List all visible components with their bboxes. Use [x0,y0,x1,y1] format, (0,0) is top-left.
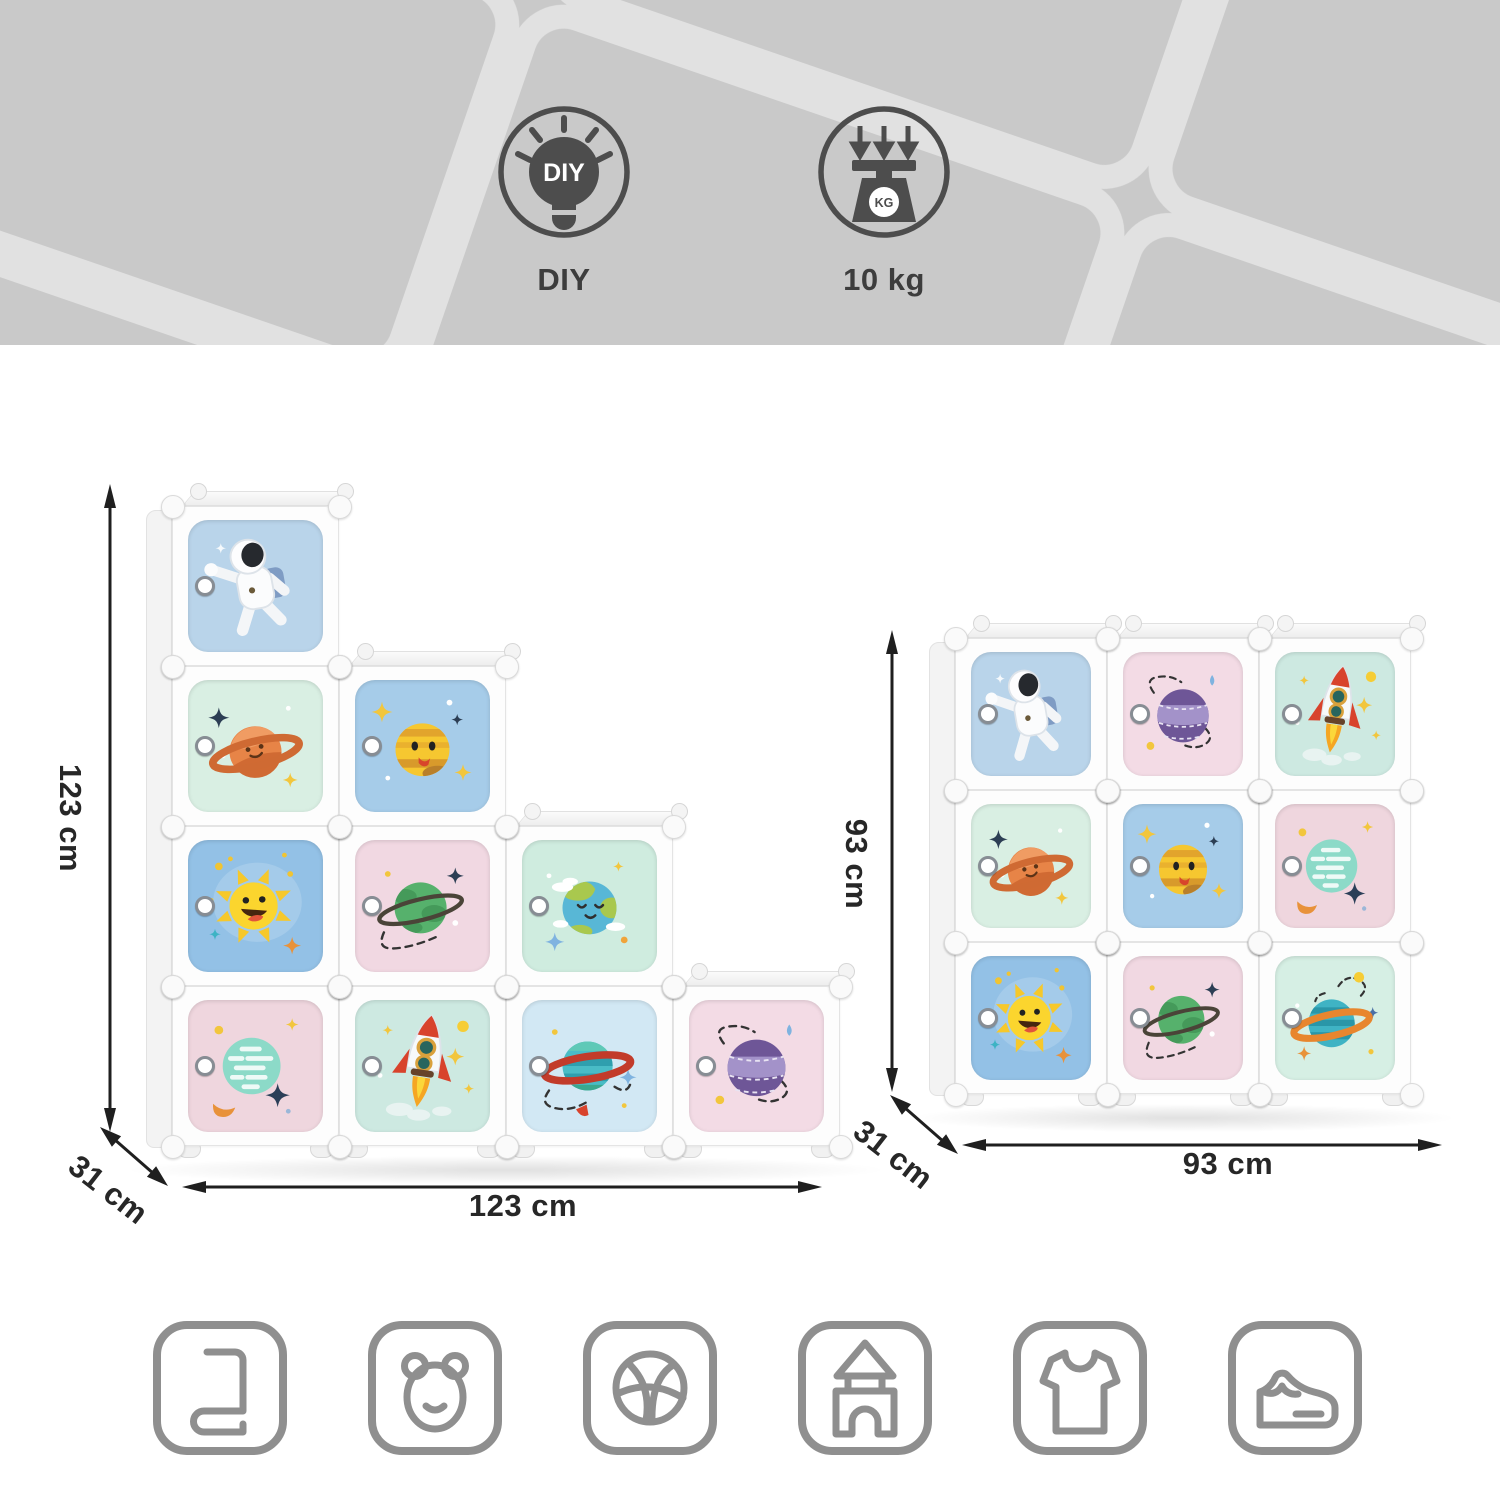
corner-connector [1400,627,1424,651]
connector-knob [1277,615,1294,632]
corner-connector [328,655,352,679]
storage-cube [172,826,339,986]
grid-configuration-shadow [915,1104,1451,1132]
cube-door-teal-dashed-planet [1275,804,1395,928]
door-handle [529,1056,549,1076]
corner-connector [944,627,968,651]
grid-width-label: 93 cm [1183,1146,1273,1182]
earth-figure [545,861,627,951]
storage-cube [1107,942,1259,1094]
storage-cube [1259,638,1411,790]
rocket-figure [1295,663,1381,766]
red-ringed-planet-figure [543,1029,637,1116]
storage-cube [673,986,840,1146]
staircase-height-arrow [95,482,125,1134]
diy-feature-label: DIY [434,262,694,298]
rocket-figure [378,1011,474,1120]
storage-cube [955,790,1107,942]
purple-planet-figure [1147,675,1215,750]
storage-cube [955,638,1107,790]
teal-planet-figure [213,1018,299,1117]
cube-door-teal-orange-ringed-planet [1275,956,1395,1080]
door-handle [529,896,549,916]
cube-door-smiley-earth [522,840,657,972]
cube-door-green-ringed-planet [1123,956,1243,1080]
door-handle [978,1008,998,1028]
connector-knob [691,963,708,980]
door-handle [362,896,382,916]
cube-door-purple-planet [689,1000,824,1132]
door-handle [362,736,382,756]
corner-connector [495,1135,519,1159]
orange-ringed-planet-figure [1292,972,1379,1061]
door-handle [1130,856,1150,876]
corner-connector [161,975,185,999]
tshirt-icon [1010,1318,1150,1458]
storage-cube [172,666,339,826]
corner-connector [1248,931,1272,955]
connector-knob [357,643,374,660]
corner-connector [1096,779,1120,803]
toy-castle-icon [795,1318,935,1458]
cube-door-rocket [1275,652,1395,776]
cube-door-saturn-orange [971,804,1091,928]
shoe-icon [1225,1318,1365,1458]
corner-connector [161,815,185,839]
corner-connector [161,495,185,519]
weight-scale-icon: KG [804,92,964,252]
corner-connector [1096,627,1120,651]
door-handle [978,856,998,876]
door-handle [195,736,215,756]
corner-connector [944,779,968,803]
saturn-figure [987,828,1075,905]
door-handle [1282,704,1302,724]
corner-connector [1400,931,1424,955]
storage-cube [339,666,506,826]
cube-door-saturn-orange [188,680,323,812]
corner-connector [1096,931,1120,955]
cube-door-green-ringed-planet [355,840,490,972]
cube-door-smiley-sun [971,956,1091,1080]
corner-connector [328,815,352,839]
door-handle [1130,1008,1150,1028]
storage-cube [172,506,339,666]
storage-cube [1259,942,1411,1094]
cube-door-astronaut [188,520,323,652]
cube-door-yellow-smiley-planet [355,680,490,812]
ball-icon [580,1318,720,1458]
door-handle [978,704,998,724]
grid-height-label: 93 cm [838,819,874,909]
connector-knob [1125,615,1142,632]
door-handle [195,896,215,916]
corner-connector [1248,779,1272,803]
purple-planet-figure [716,1025,792,1105]
door-handle [195,1056,215,1076]
corner-connector [1400,1083,1424,1107]
shoe-icon [1225,1318,1365,1458]
book-icon [150,1318,290,1458]
book-icon [150,1318,290,1458]
cube-door-smiley-sun [188,840,323,972]
corner-connector [495,815,519,839]
yellow-planet-figure [1138,823,1227,899]
sun-figure [209,853,302,955]
corner-connector [495,975,519,999]
cube-door-teal-dashed-planet [188,1000,323,1132]
cube-door-rocket [355,1000,490,1132]
grid-configuration-side-face [929,642,955,1096]
corner-connector [161,655,185,679]
teddy-bear-icon [365,1318,505,1458]
cube-door-purple-planet [1123,652,1243,776]
connector-knob [190,483,207,500]
yellow-planet-figure [371,700,471,781]
corner-connector [328,1135,352,1159]
corner-connector [495,655,519,679]
storage-cube [339,826,506,986]
door-handle [1282,856,1302,876]
tile-pattern-background [0,0,1500,345]
staircase-height-label: 123 cm [52,764,88,872]
corner-connector [1248,627,1272,651]
storage-cube [506,826,673,986]
storage-cube [506,986,673,1146]
scale-kg-text: KG [875,196,894,210]
storage-cube [955,942,1107,1094]
cube-door-yellow-smiley-planet [1123,804,1243,928]
grid-height-arrow [877,628,907,1094]
teddy-bear-icon [365,1318,505,1458]
storage-cube [172,986,339,1146]
tshirt-icon [1010,1318,1150,1458]
corner-connector [328,975,352,999]
connector-knob [973,615,990,632]
corner-connector [328,495,352,519]
green-ringed-planet-figure [377,868,464,949]
storage-cube [1259,790,1411,942]
corner-connector [829,975,853,999]
staircase-width-label: 123 cm [469,1188,577,1224]
cube-door-teal-red-ringed-planet [522,1000,657,1132]
toy-castle-icon [795,1318,935,1458]
storage-cube [339,986,506,1146]
door-handle [195,576,215,596]
ball-icon [580,1318,720,1458]
cube-door-astronaut [971,652,1091,776]
saturn-figure [206,706,305,788]
corner-connector [1096,1083,1120,1107]
corner-connector [1400,779,1424,803]
corner-connector [662,975,686,999]
corner-connector [662,815,686,839]
door-handle [362,1056,382,1076]
connector-knob [524,803,541,820]
corner-connector [944,931,968,955]
storage-cube [1107,790,1259,942]
corner-connector [1248,1083,1272,1107]
product-infographic: DIY DIY KG 10 kg [0,0,1500,1500]
teal-planet-figure [1297,821,1373,914]
diy-lightbulb-icon: DIY [484,92,644,252]
weight-feature-label: 10 kg [754,262,1014,298]
storage-cube [1107,638,1259,790]
door-handle [1130,704,1150,724]
door-handle [1282,1008,1302,1028]
top-banner: DIY DIY KG 10 kg [0,0,1500,345]
door-handle [696,1056,716,1076]
sun-figure [989,968,1072,1064]
green-ringed-planet-figure [1142,982,1220,1058]
corner-connector [662,1135,686,1159]
diy-bulb-text: DIY [543,159,585,187]
